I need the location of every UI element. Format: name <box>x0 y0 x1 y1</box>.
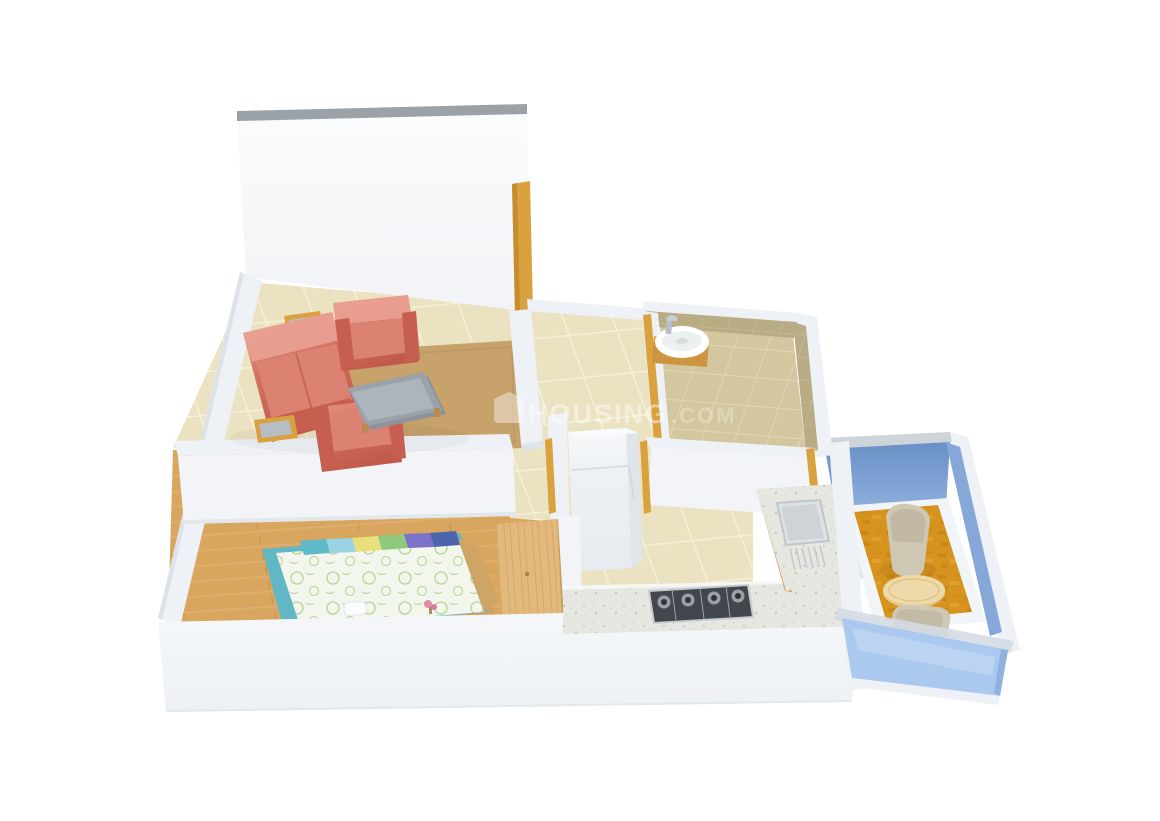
svg-text:HOUSING.COM: HOUSING.COM <box>528 399 736 429</box>
gas-hob <box>649 585 753 623</box>
watermark-brand: HOUSING <box>528 399 668 429</box>
double-sink <box>777 500 829 545</box>
bedroom-slippers <box>344 601 367 616</box>
armchair-top <box>333 295 420 371</box>
kitchen-counter-front <box>563 580 862 634</box>
floor-plan-render: HOUSING.COM <box>0 0 1160 821</box>
tall-back-wall <box>237 104 533 314</box>
balcony-round-table <box>883 575 945 608</box>
side-table-2 <box>254 415 298 443</box>
floor-plan-svg: HOUSING.COM <box>0 0 1160 821</box>
watermark-suffix: .COM <box>671 403 736 428</box>
